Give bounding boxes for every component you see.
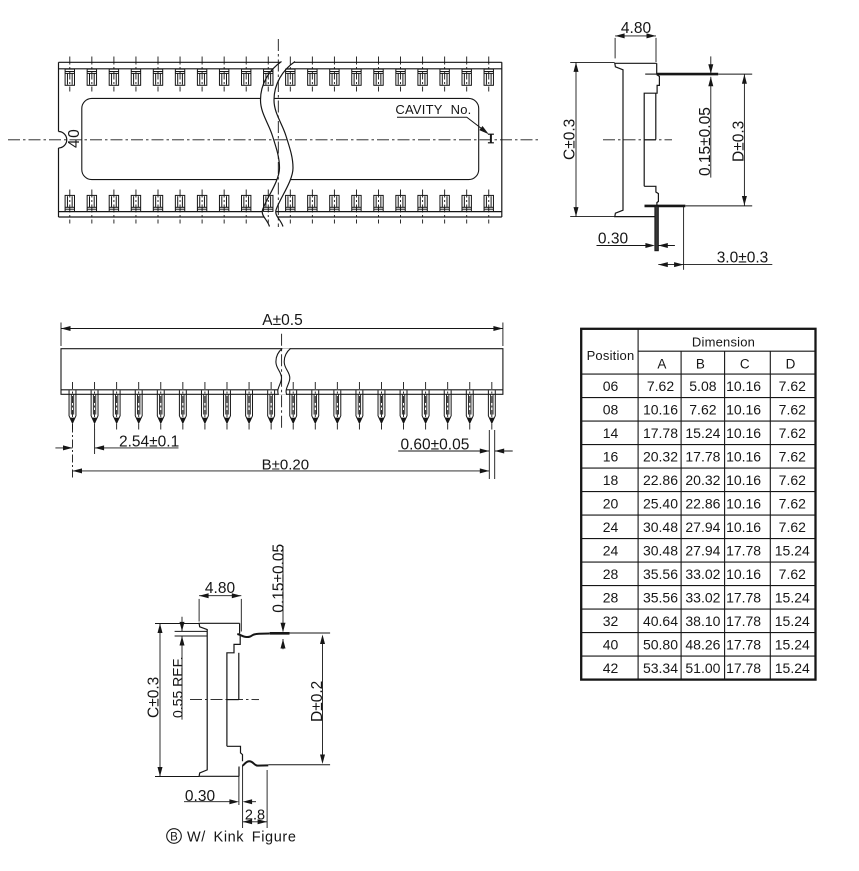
svg-text:2.8: 2.8: [245, 808, 265, 824]
svg-text:D±0.2: D±0.2: [309, 681, 326, 722]
svg-text:0.60±0.05: 0.60±0.05: [401, 436, 470, 453]
svg-text:10.16: 10.16: [726, 449, 761, 465]
svg-text:30.48: 30.48: [643, 543, 678, 559]
svg-text:7.62: 7.62: [779, 425, 806, 441]
svg-text:50.80: 50.80: [643, 637, 678, 653]
svg-text:28: 28: [603, 566, 619, 582]
svg-text:15.24: 15.24: [775, 637, 810, 653]
svg-text:33.02: 33.02: [685, 590, 720, 606]
svg-text:32: 32: [603, 613, 619, 629]
svg-text:2.54±0.1: 2.54±0.1: [119, 433, 179, 450]
svg-text:22.86: 22.86: [685, 496, 720, 512]
svg-text:08: 08: [603, 402, 619, 418]
svg-text:7.62: 7.62: [689, 402, 716, 418]
svg-text:35.56: 35.56: [643, 590, 678, 606]
svg-text:24: 24: [603, 519, 619, 535]
svg-text:40: 40: [603, 637, 619, 653]
svg-text:17.78: 17.78: [726, 613, 761, 629]
svg-text:20.32: 20.32: [685, 472, 720, 488]
svg-text:10.16: 10.16: [726, 496, 761, 512]
svg-text:7.62: 7.62: [779, 519, 806, 535]
svg-text:C: C: [740, 356, 750, 371]
svg-text:B: B: [696, 356, 705, 371]
svg-text:53.34: 53.34: [643, 660, 678, 676]
svg-text:38.10: 38.10: [685, 613, 720, 629]
svg-text:CAVITY No.: CAVITY No.: [395, 102, 471, 117]
svg-text:10.16: 10.16: [726, 378, 761, 394]
svg-text:7.62: 7.62: [647, 378, 674, 394]
svg-text:27.94: 27.94: [685, 543, 720, 559]
svg-text:0.30: 0.30: [185, 788, 216, 805]
svg-text:10.16: 10.16: [726, 402, 761, 418]
svg-text:7.62: 7.62: [779, 566, 806, 582]
svg-text:20.32: 20.32: [643, 449, 678, 465]
svg-text:A: A: [657, 356, 666, 371]
svg-text:15.24: 15.24: [775, 590, 810, 606]
svg-text:A±0.5: A±0.5: [262, 312, 302, 329]
svg-text:17.78: 17.78: [643, 425, 678, 441]
svg-text:33.02: 33.02: [685, 566, 720, 582]
svg-text:51.00: 51.00: [685, 660, 720, 676]
svg-text:15.24: 15.24: [685, 425, 720, 441]
svg-text:10.16: 10.16: [643, 402, 678, 418]
svg-text:Position: Position: [587, 348, 635, 363]
svg-text:10.16: 10.16: [726, 472, 761, 488]
svg-text:3.0±0.3: 3.0±0.3: [717, 249, 769, 266]
svg-text:30.48: 30.48: [643, 519, 678, 535]
svg-text:20: 20: [603, 496, 619, 512]
svg-text:Dimension: Dimension: [692, 334, 755, 349]
svg-text:15.24: 15.24: [775, 613, 810, 629]
svg-text:06: 06: [603, 378, 619, 394]
svg-text:7.62: 7.62: [779, 472, 806, 488]
svg-text:0.55 REF.: 0.55 REF.: [170, 657, 186, 718]
svg-text:28: 28: [603, 590, 619, 606]
svg-text:C±0.3: C±0.3: [562, 119, 579, 160]
svg-text:24: 24: [603, 543, 619, 559]
svg-text:35.56: 35.56: [643, 566, 678, 582]
svg-text:17.78: 17.78: [726, 543, 761, 559]
svg-text:22.86: 22.86: [643, 472, 678, 488]
svg-text:15.24: 15.24: [775, 660, 810, 676]
svg-text:0.15±0.05: 0.15±0.05: [697, 107, 714, 176]
svg-text:17.78: 17.78: [726, 660, 761, 676]
svg-text:15.24: 15.24: [775, 543, 810, 559]
svg-text:D±0.3: D±0.3: [730, 121, 747, 162]
svg-text:10.16: 10.16: [726, 566, 761, 582]
svg-text:16: 16: [603, 449, 619, 465]
svg-text:D: D: [786, 356, 796, 371]
svg-text:7.62: 7.62: [779, 496, 806, 512]
svg-text:48.26: 48.26: [685, 637, 720, 653]
svg-text:B±0.20: B±0.20: [262, 456, 309, 473]
svg-text:40.64: 40.64: [643, 613, 678, 629]
svg-text:7.62: 7.62: [779, 402, 806, 418]
svg-text:7.62: 7.62: [779, 378, 806, 394]
svg-text:5.08: 5.08: [689, 378, 716, 394]
svg-text:7.62: 7.62: [779, 449, 806, 465]
svg-text:0.15±0.05: 0.15±0.05: [271, 544, 288, 613]
svg-text:17.78: 17.78: [685, 449, 720, 465]
svg-text:25.40: 25.40: [643, 496, 678, 512]
svg-text:40: 40: [66, 128, 83, 148]
svg-text:0.30: 0.30: [598, 231, 629, 248]
svg-text:17.78: 17.78: [726, 637, 761, 653]
svg-text:10.16: 10.16: [726, 519, 761, 535]
svg-text:W/ Kink Figure: W/ Kink Figure: [187, 830, 296, 846]
svg-text:42: 42: [603, 660, 619, 676]
svg-text:C±0.3: C±0.3: [146, 677, 163, 718]
svg-text:18: 18: [603, 472, 619, 488]
svg-text:10.16: 10.16: [726, 425, 761, 441]
svg-text:17.78: 17.78: [726, 590, 761, 606]
svg-text:27.94: 27.94: [685, 519, 720, 535]
svg-text:4.80: 4.80: [205, 580, 236, 597]
svg-text:14: 14: [603, 425, 619, 441]
svg-text:4.80: 4.80: [621, 20, 652, 37]
svg-text:B: B: [170, 831, 178, 843]
